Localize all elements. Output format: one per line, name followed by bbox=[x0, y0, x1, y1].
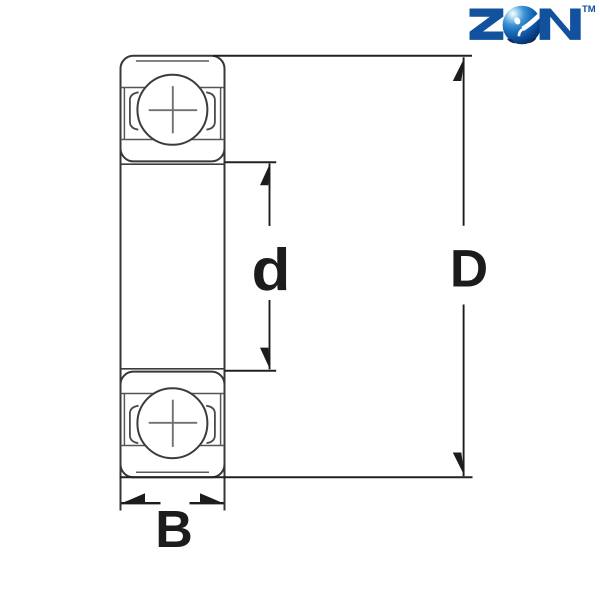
svg-text:TM: TM bbox=[582, 4, 596, 15]
svg-text:D: D bbox=[450, 240, 488, 299]
svg-text:B: B bbox=[155, 501, 193, 559]
svg-text:d: d bbox=[252, 237, 291, 303]
